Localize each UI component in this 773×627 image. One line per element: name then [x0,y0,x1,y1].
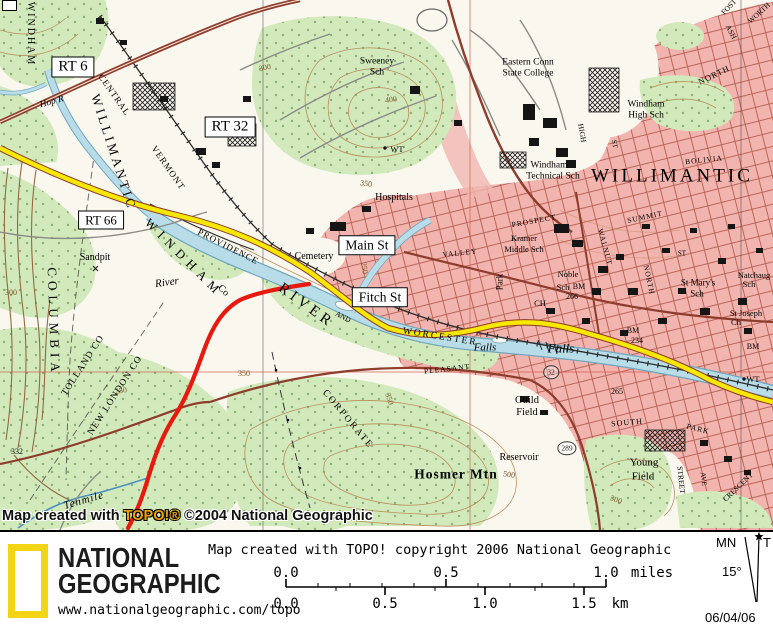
watermark-topo-brand: TOPO!® [124,508,180,524]
label-hospitals: Hospitals [375,193,413,203]
magnetic-north-label: MN [716,535,736,550]
scale-mi-unit: miles [631,565,673,581]
brand-name-line2: GEOGRAPHIC [58,571,221,597]
label-street-vert: STREET [676,466,686,494]
label-windham-high-2: High Sch [628,111,664,121]
label-columbia-county: COLUMBIA [46,267,63,377]
declination-angle: 15° [722,564,742,579]
label-windham-tech-2: Technical Sch [526,172,579,182]
label-guild-field-2: Field [516,408,538,419]
label-kramer-2: Middle Sch [504,245,543,254]
label-water-tank-east: WT [746,375,759,384]
label-willimantic-city: WILLIMANTIC [591,167,753,186]
route-box-rt32: RT 32 [205,117,256,138]
scale-km-1: 1.0 [472,596,497,612]
true-north-label: T [763,535,771,550]
scale-bar-lines [286,579,606,595]
contour-250-w: 250 [115,386,128,396]
label-sandpit: Sandpit [80,253,111,263]
label-windham-tech-1: Windham [530,161,567,171]
label-reservoir: Reservoir [500,453,539,463]
scale-km-15: 1.5 [571,596,596,612]
route-box-rt66: RT 66 [78,211,124,230]
contour-350-n: 350 [360,179,373,189]
label-park-vert: Park [496,274,505,291]
map-date: 06/04/06 [705,610,756,625]
label-elev-332: 332 [11,448,23,456]
label-water-tank-hill: WT [390,145,403,154]
scale-km-0: 0.0 [273,596,298,612]
label-elev-265: 265 [611,388,623,396]
label-bm266-1: BM [573,283,585,291]
scale-km-unit: km [612,596,629,612]
scale-mi-1: 1.0 [593,565,618,581]
label-windham-high-1: Windham [627,100,664,110]
topo-map-art [0,0,773,530]
contour-400: 400 [385,95,398,105]
contour-250-v: 250 [359,261,369,274]
route-box-fitch-st: Fitch St [352,287,408,307]
label-hosmer-mtn: Hosmer Mtn [414,467,498,481]
label-natchaug-2: Sch [743,280,756,289]
national-geographic-logo-icon [8,544,48,618]
label-high-st-suffix: ST [610,139,618,148]
watermark-suffix: ©2004 National Geographic [180,508,373,524]
label-bm234-1: BM [627,327,639,335]
contour-500: 500 [503,470,516,480]
contour-300-w: 300 [5,289,17,297]
label-guild-field-1: Guild [515,396,539,407]
label-young-field-1: Young [630,458,659,469]
label-st-joseph-2: Ch [731,318,741,327]
scale-bar: 0.0 0.5 1.0 miles 0.0 0.5 1.0 1.5 km [240,552,680,614]
label-windham-county-edge: WINDHAM [25,2,35,67]
label-church: CH [534,299,546,308]
label-sweeney-school: Sweeney [360,57,394,67]
route-shield-289: 289 [557,441,576,455]
map-watermark: Map created with TOPO!® ©2004 National G… [2,508,373,524]
map-canvas: WINDHAM Hop R CENTRAL VERMONT WILLIMANTI… [0,0,773,530]
label-falls-east: Falls [548,342,575,355]
topo-app-window: WINDHAM Hop R CENTRAL VERMONT WILLIMANTI… [0,0,773,627]
label-ave-vert: AVE [699,472,707,486]
route-box-main-st: Main St [338,235,395,255]
footer-bar: NATIONAL GEOGRAPHIC www.nationalgeograph… [0,532,773,627]
scale-mi-05: 0.5 [433,565,458,581]
label-bm266-2: 266 [566,293,578,301]
label-st-abbrev: ST [678,251,686,258]
label-noble-1: Noble [558,270,579,279]
label-noble-2: Sch [557,283,570,292]
label-bm234-2: 234 [631,337,643,345]
label-young-field-2: Field [632,472,655,483]
scale-km-05: 0.5 [372,596,397,612]
label-state-college: State College [503,69,554,79]
label-kramer-1: Kramer [511,234,537,243]
cut-label-box [2,0,17,11]
label-bm-east: BM [747,343,759,351]
label-cemetery: Cemetery [295,252,334,262]
contour-350-w: 350 [238,370,250,378]
watermark-prefix: Map created with [2,508,124,524]
label-st-marys-1: St Mary's [681,279,715,288]
route-shield-32: 32 [543,365,559,379]
label-falls-west: Falls [474,343,497,354]
label-st-marys-2: Sch [690,290,704,299]
route-box-rt6: RT 6 [51,57,94,78]
label-eastern-conn: Eastern Conn [502,58,553,68]
label-sweeney-school-2: Sch [370,68,384,78]
label-high-st: HIGH [577,123,588,143]
scale-mi-0: 0.0 [273,565,298,581]
